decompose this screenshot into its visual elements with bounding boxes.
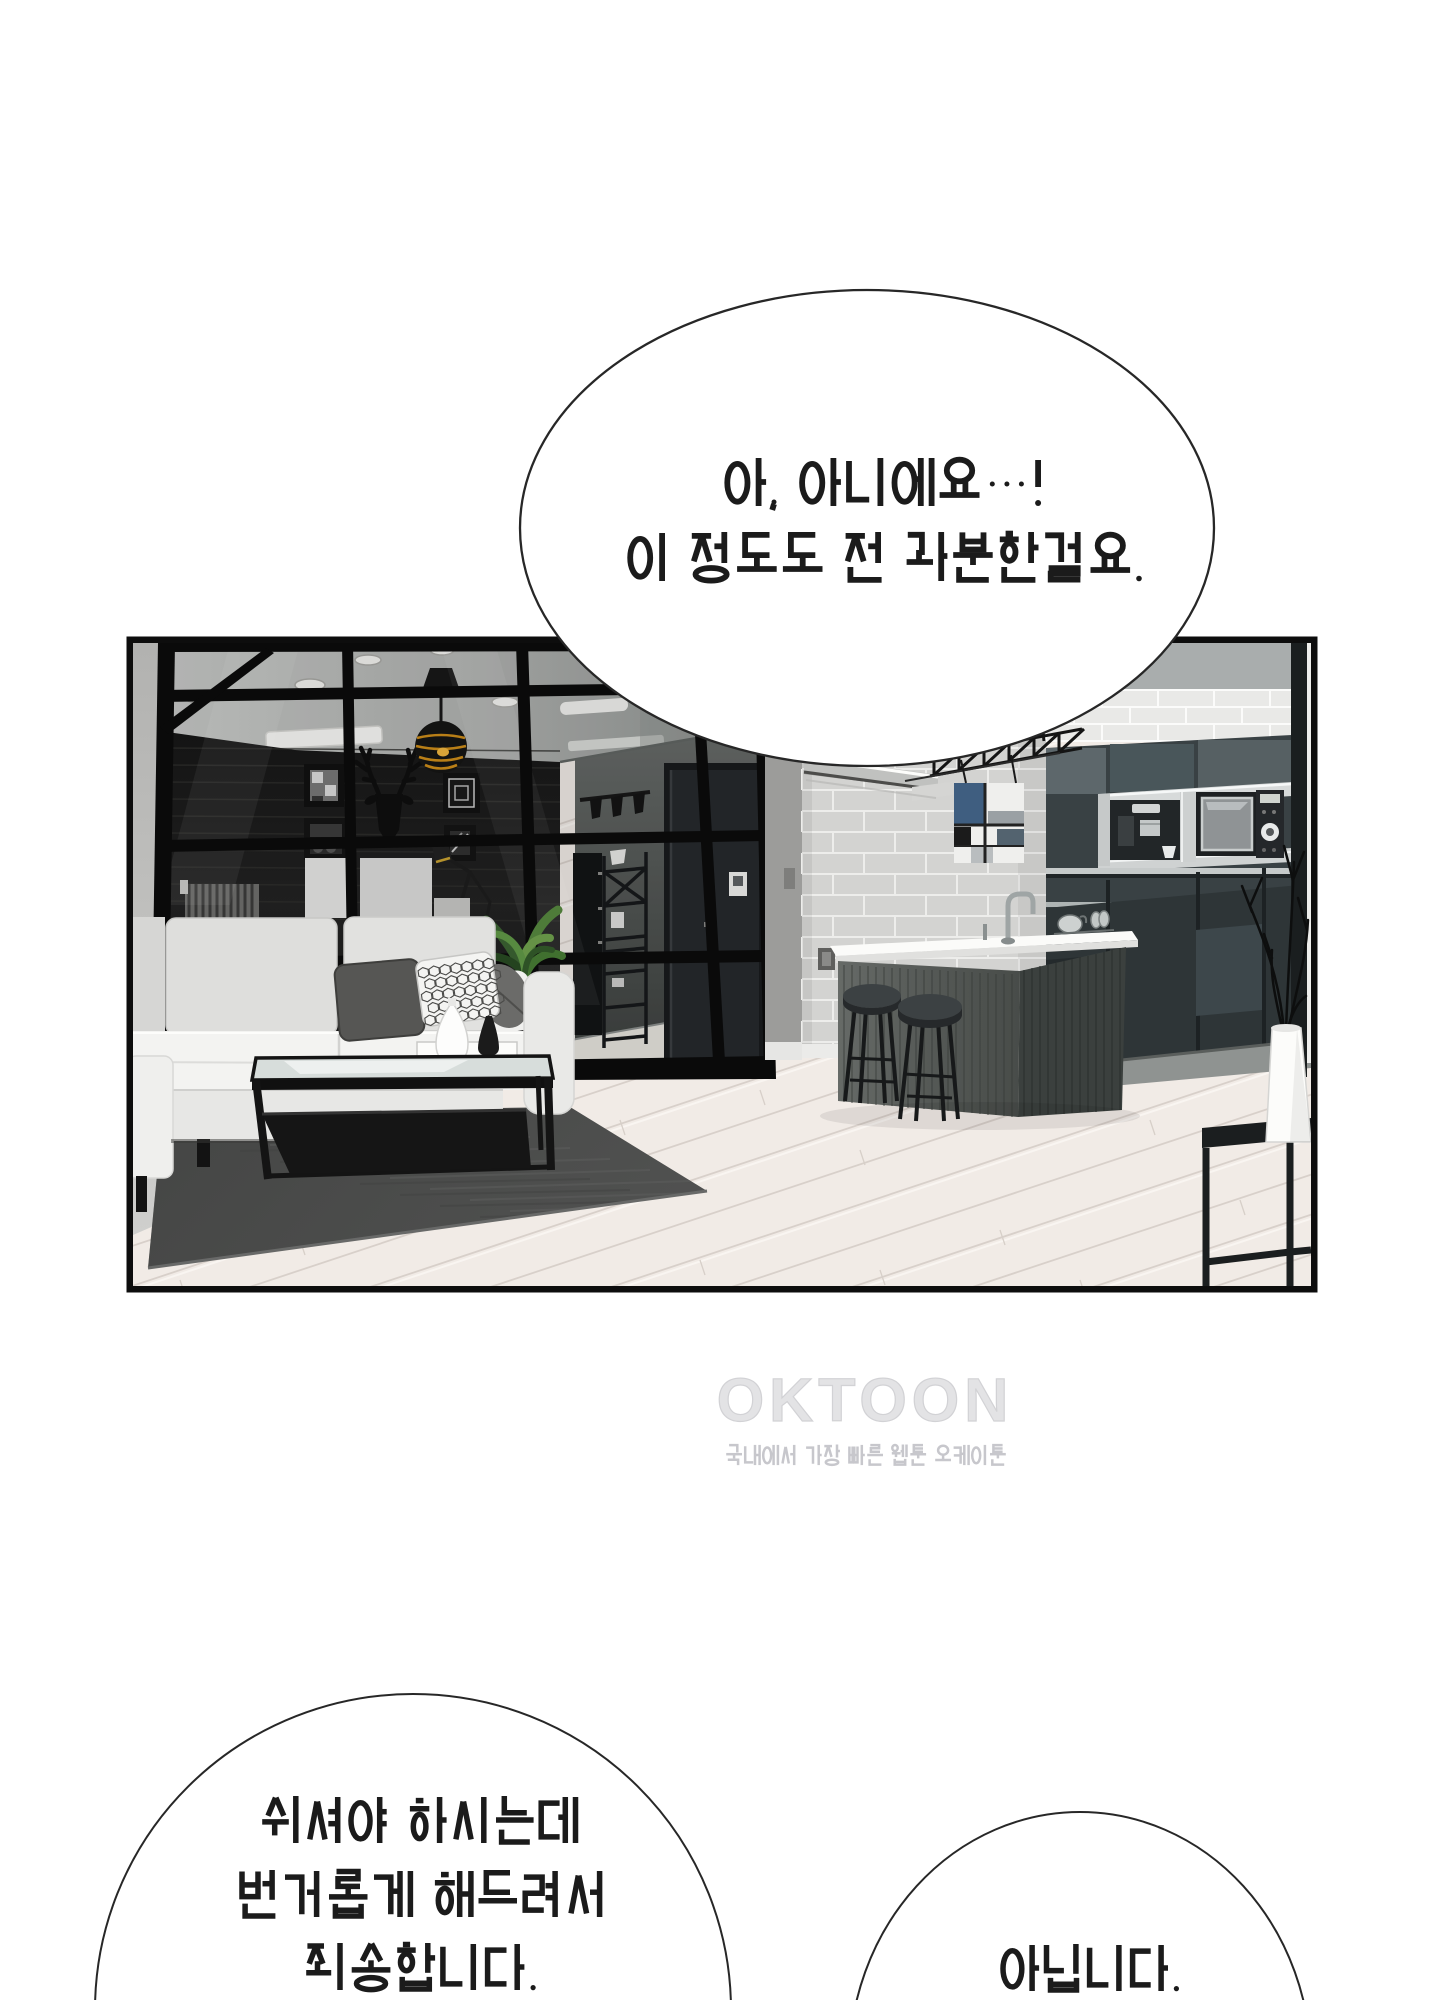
svg-text:OKTOON: OKTOON (717, 1366, 1014, 1434)
